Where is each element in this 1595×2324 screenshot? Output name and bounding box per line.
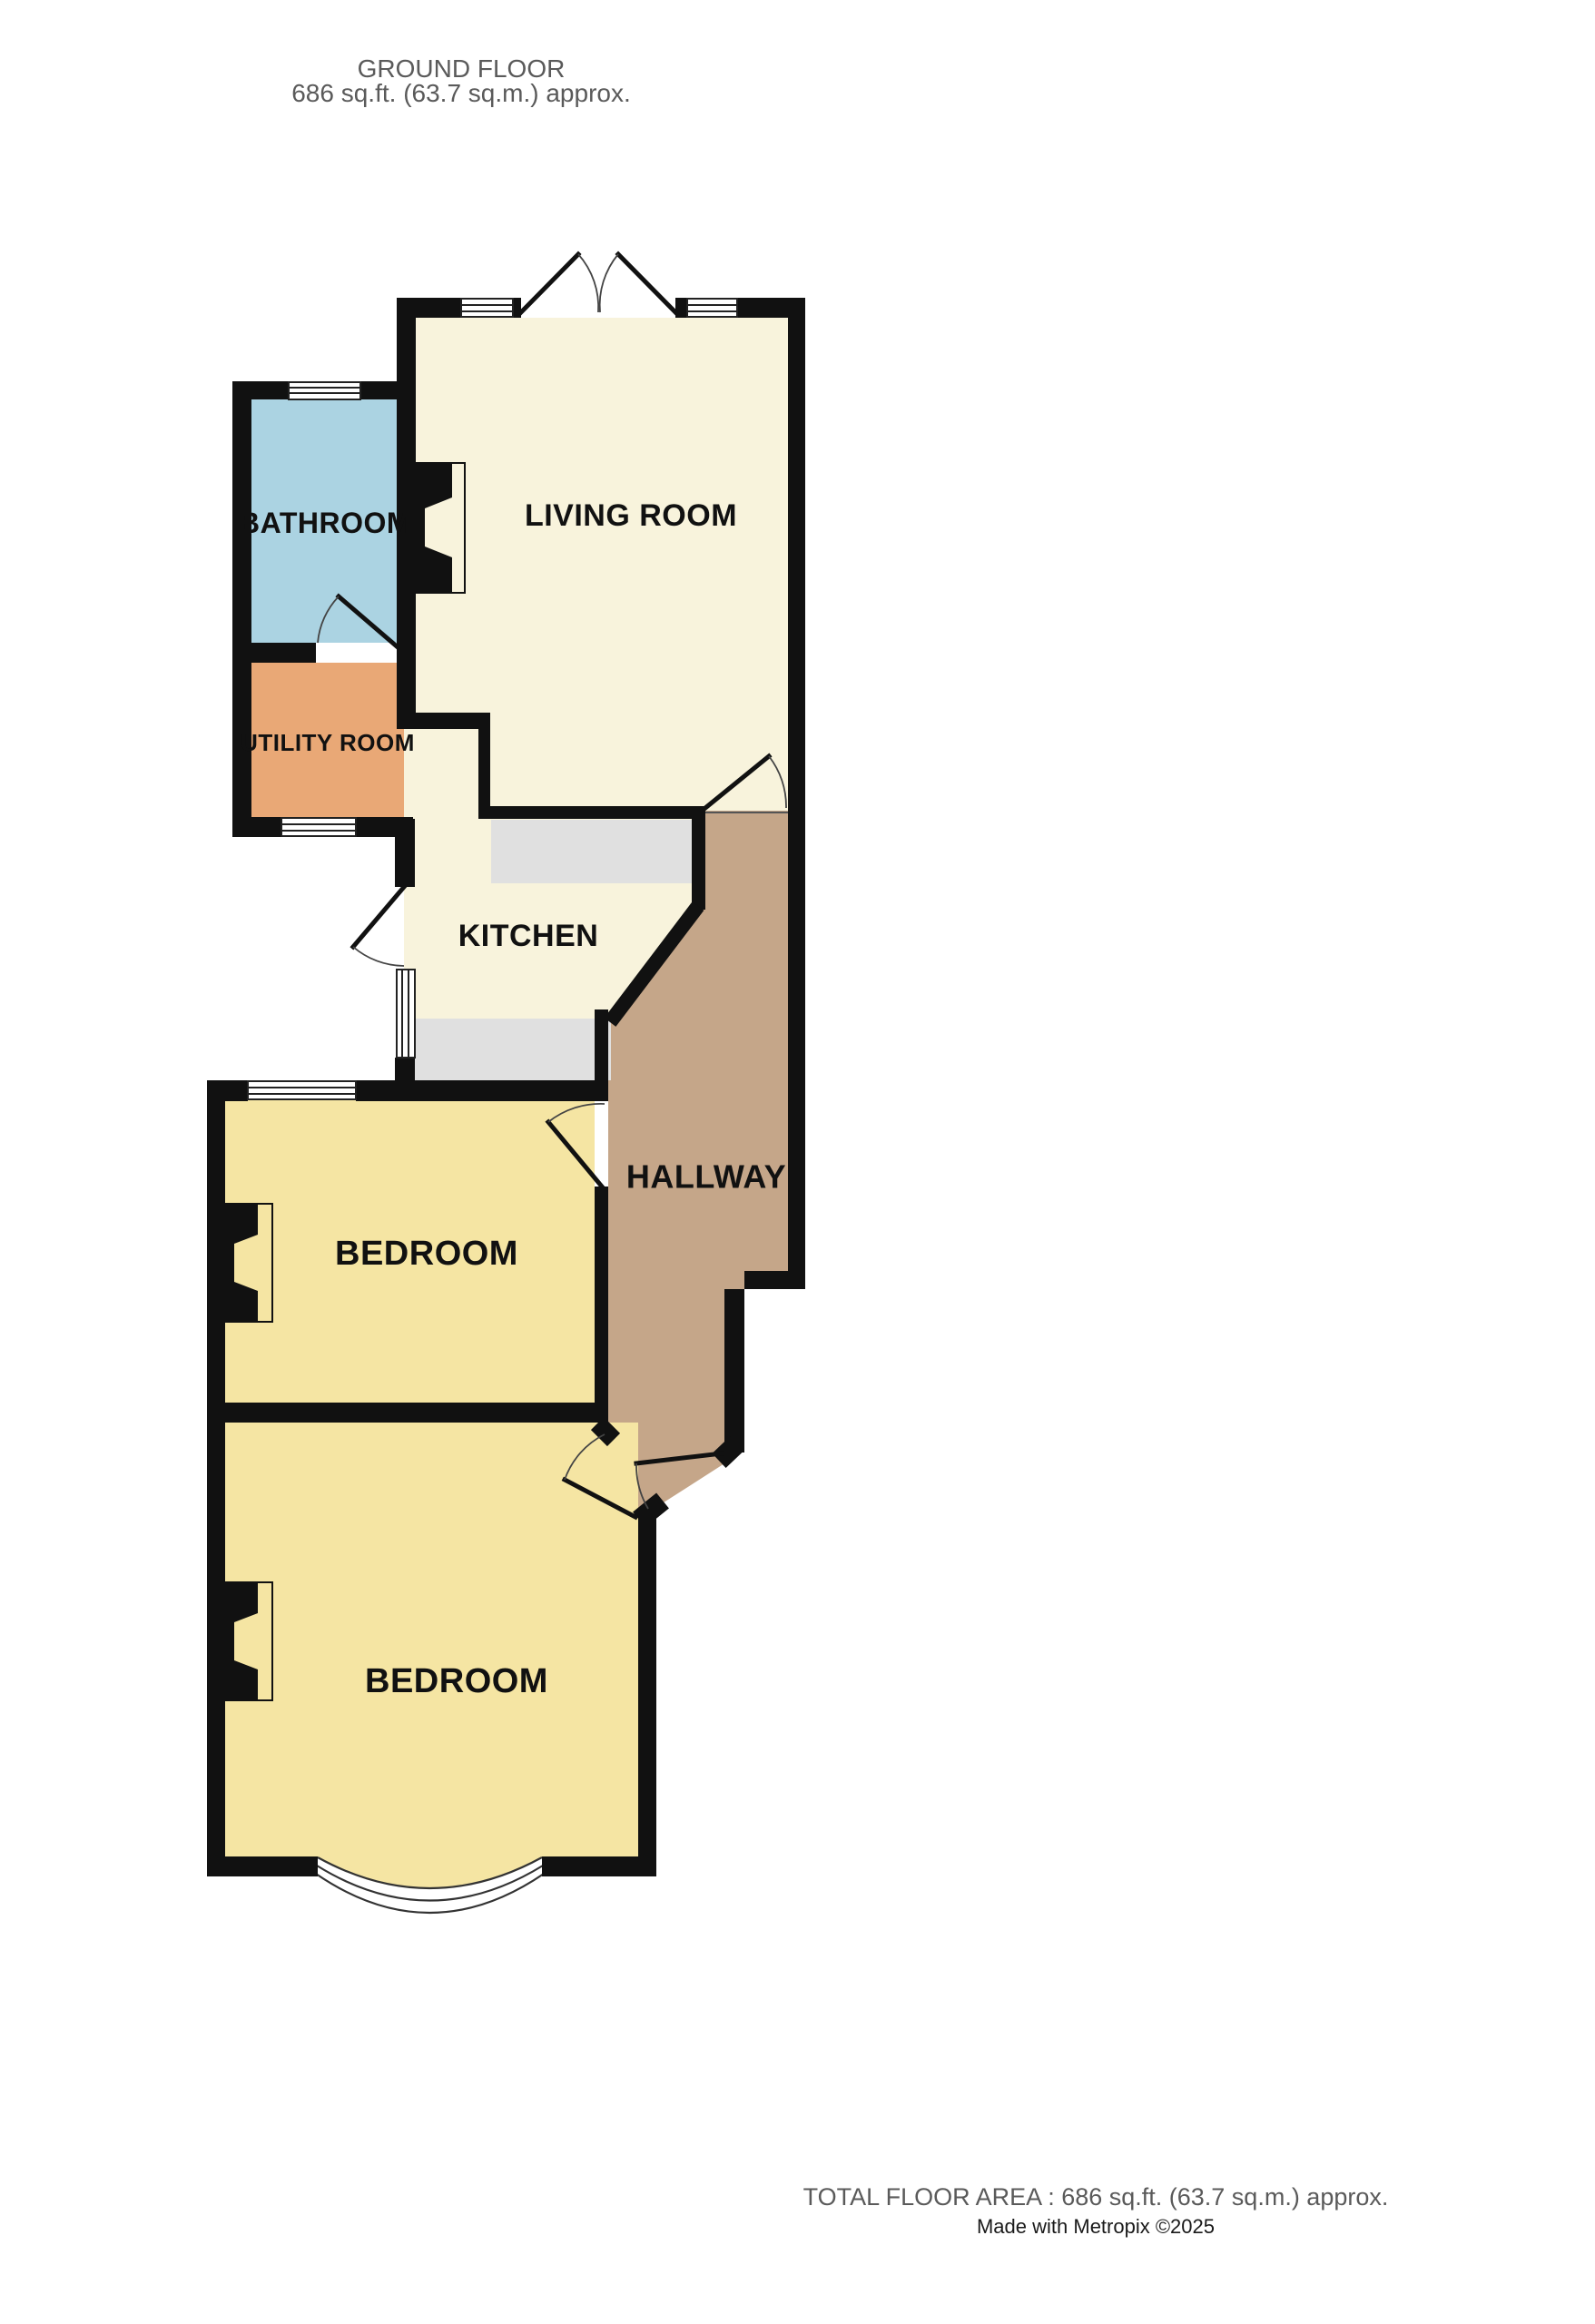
room-fills	[225, 318, 788, 1888]
wall	[478, 806, 705, 819]
wall	[232, 381, 289, 399]
wall	[207, 1856, 318, 1876]
label-kitchen: KITCHEN	[458, 919, 599, 953]
utility-window	[281, 818, 356, 836]
wall	[232, 817, 281, 837]
floorplan-canvas: LIVING ROOM BATHROOM UTILITY ROOM KITCHE…	[0, 0, 1595, 2324]
header-area: 686 sq.ft. (63.7 sq.m.) approx.	[291, 79, 631, 107]
counter-bottom	[415, 1019, 611, 1080]
side-entrance-door	[353, 887, 404, 966]
wall	[692, 819, 705, 910]
wall	[251, 643, 316, 663]
wall	[397, 298, 461, 318]
bedroom-front-window	[248, 1081, 356, 1099]
living-room-window-right	[687, 299, 737, 317]
floorplan-page: LIVING ROOM BATHROOM UTILITY ROOM KITCHE…	[0, 0, 1595, 2324]
wall	[788, 298, 805, 1289]
label-living-room: LIVING ROOM	[525, 498, 737, 533]
footer-credit: Made with Metropix ©2025	[977, 2215, 1215, 2238]
wall	[724, 1289, 744, 1452]
wall	[595, 1187, 608, 1423]
label-bathroom: BATHROOM	[239, 507, 411, 539]
wall	[542, 1856, 656, 1876]
wall	[395, 819, 415, 887]
living-room-french-doors	[519, 254, 677, 314]
wall	[207, 1080, 225, 1876]
label-utility-room: UTILITY ROOM	[241, 729, 415, 756]
label-hallway: HALLWAY	[626, 1158, 786, 1196]
label-bedroom-front: BEDROOM	[335, 1235, 518, 1273]
wall	[397, 713, 490, 729]
living-room-window-left	[461, 299, 513, 317]
room-bedroom-back	[225, 1423, 638, 1888]
wall	[232, 381, 251, 837]
wall	[744, 1271, 805, 1289]
wall	[207, 1403, 599, 1423]
wall	[638, 1511, 656, 1876]
wall	[478, 713, 490, 819]
footer-total-area: TOTAL FLOOR AREA : 686 sq.ft. (63.7 sq.m…	[803, 2183, 1389, 2211]
wall	[356, 1080, 608, 1101]
bathroom-window	[289, 382, 360, 399]
kitchen-window	[397, 970, 415, 1058]
counter-top	[491, 820, 692, 883]
label-bedroom-back: BEDROOM	[365, 1662, 548, 1700]
